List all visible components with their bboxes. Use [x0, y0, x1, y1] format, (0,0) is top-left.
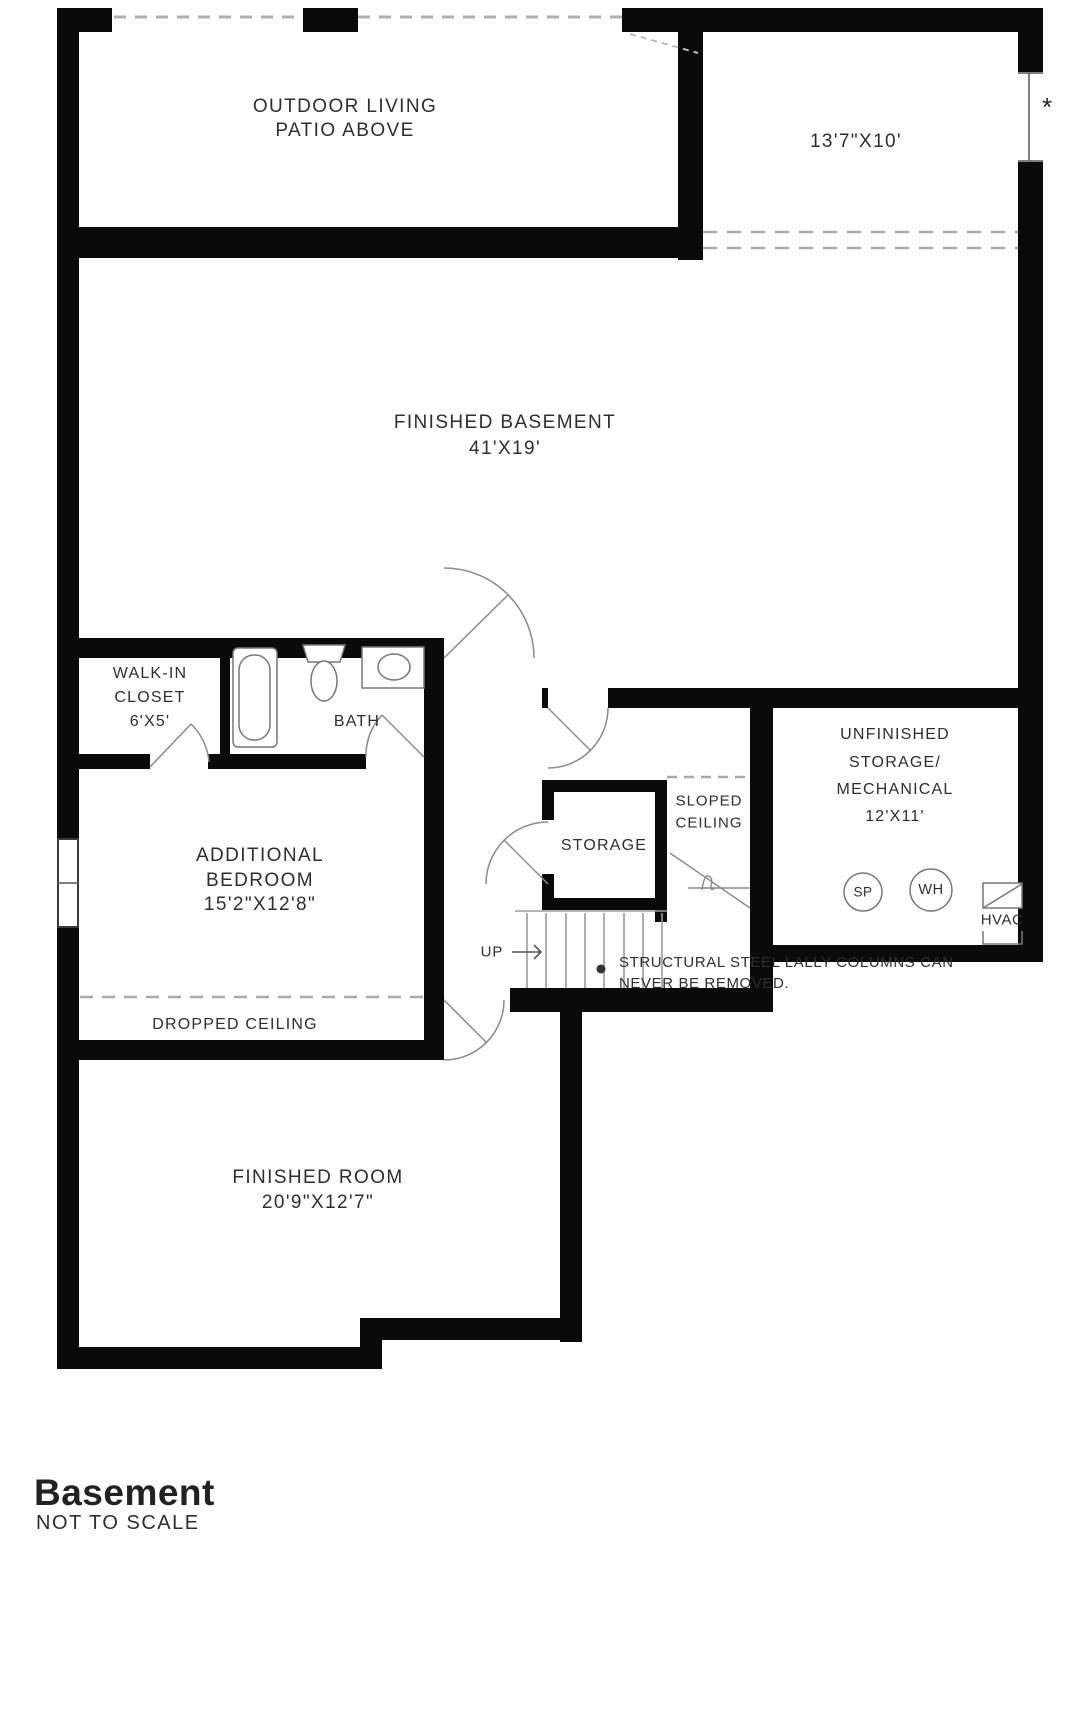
plan-linework: [0, 0, 1080, 1715]
plan-title: Basement: [34, 1472, 215, 1514]
alcove-dashed-lines: [703, 232, 1018, 248]
mech-label-line1: UNFINISHED: [840, 726, 950, 744]
finished-basement-label: FINISHED BASEMENT: [394, 412, 616, 434]
bedroom-label-line2: BEDROOM: [206, 870, 314, 892]
finished-room-label: FINISHED ROOM: [232, 1167, 403, 1189]
asterisk-marker: *: [1042, 92, 1052, 123]
bedroom-label-line1: ADDITIONAL: [196, 845, 324, 867]
sink: [362, 647, 424, 688]
note-bullet: [597, 965, 606, 974]
dropped-ceiling-label: DROPPED CEILING: [152, 1016, 318, 1034]
closet-door-arc: [191, 724, 209, 762]
bath-label: BATH: [334, 713, 380, 731]
closet-label-line2: CLOSET: [114, 689, 185, 707]
sloped-ceiling-label-line2: CEILING: [675, 815, 742, 832]
patio-label-line2: PATIO ABOVE: [275, 120, 414, 142]
up-label: UP: [481, 944, 504, 961]
toilet: [303, 645, 345, 701]
bath-door-leaf: [382, 715, 424, 757]
sloped-ceiling-marks: [670, 853, 750, 908]
corridor-door-leaf: [444, 595, 508, 658]
bedroom-dimension: 15'2"X12'8": [204, 894, 316, 916]
mech-label-line2: STORAGE/: [849, 754, 941, 772]
patio-label-line1: OUTDOOR LIVING: [253, 96, 437, 118]
finished-basement-dimension: 41'X19': [469, 438, 541, 460]
plan-scale-note: NOT TO SCALE: [36, 1512, 200, 1535]
closet-dimension: 6'X5': [130, 713, 171, 731]
storage-door-leaf: [504, 840, 548, 884]
sloped-ceiling-label-line1: SLOPED: [676, 793, 743, 810]
door-arcs: [150, 568, 608, 1060]
note-line2: NEVER BE REMOVED.: [619, 975, 789, 992]
basement-floor-plan: OUTDOOR LIVING PATIO ABOVE 13'7"X10' * F…: [0, 0, 1080, 1715]
note-line1: STRUCTURAL STEEL LALLY COLUMNS CAN: [619, 954, 954, 971]
mech-door-leaf: [548, 708, 591, 751]
alcove-corner-dash: [630, 34, 698, 53]
mech-label-line3: MECHANICAL: [837, 781, 954, 799]
bedroom-door-leaf: [444, 1000, 487, 1043]
bathtub: [233, 648, 277, 747]
finished-room-dimension: 20'9"X12'7": [262, 1192, 374, 1214]
closet-label-line1: WALK-IN: [113, 665, 187, 683]
sump-pump-label: SP: [853, 885, 872, 900]
mech-dimension: 12'X11': [865, 808, 925, 826]
alcove-window-lines: [1018, 73, 1043, 161]
water-heater-label: WH: [918, 882, 943, 898]
alcove-dimension-label: 13'7"X10': [810, 131, 902, 153]
hvac-label: HVAC: [981, 912, 1024, 929]
storage-label: STORAGE: [561, 837, 647, 855]
